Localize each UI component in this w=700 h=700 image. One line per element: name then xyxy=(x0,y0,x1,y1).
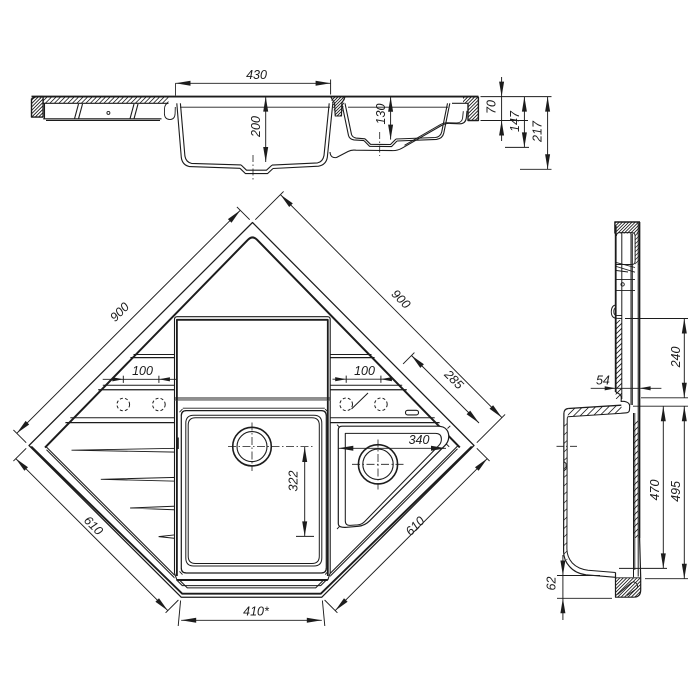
svg-text:340: 340 xyxy=(409,433,430,447)
svg-text:62: 62 xyxy=(545,577,559,591)
svg-text:100: 100 xyxy=(354,364,375,378)
svg-text:240: 240 xyxy=(669,347,683,369)
svg-text:495: 495 xyxy=(669,481,683,502)
svg-text:470: 470 xyxy=(648,480,662,501)
svg-text:430: 430 xyxy=(246,68,267,82)
svg-text:322: 322 xyxy=(287,471,301,492)
svg-text:217: 217 xyxy=(531,120,545,143)
svg-text:100: 100 xyxy=(132,364,153,378)
svg-text:147: 147 xyxy=(508,110,522,132)
svg-text:70: 70 xyxy=(485,100,499,114)
svg-text:410*: 410* xyxy=(243,605,270,619)
svg-text:130: 130 xyxy=(374,104,388,125)
svg-text:200: 200 xyxy=(249,116,263,138)
svg-text:54: 54 xyxy=(596,373,610,387)
